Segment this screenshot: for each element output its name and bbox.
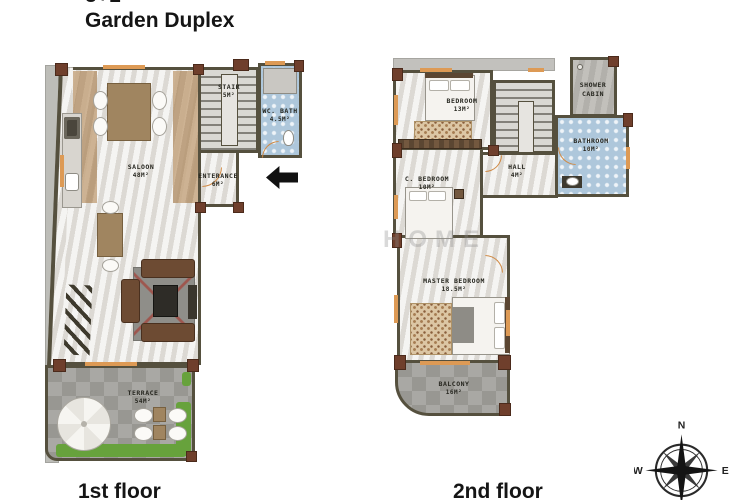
headboard [425,73,473,78]
coffee-table [153,285,178,317]
compass-label-east: E [722,466,729,477]
side-table [97,213,123,257]
caption-1st-floor: 1st floor [78,481,161,500]
floorplan-1st-floor: SALOON 48M² STAIR 5M² WC. BATH 4.5M² ENT… [45,55,303,465]
room-stair [198,67,259,153]
room-area: 18.5M² [423,286,485,294]
window-accent [420,68,452,72]
wall-pillar [394,355,406,370]
dining-chair [152,117,167,136]
pillow [450,80,470,91]
wall-pillar [233,202,244,213]
dining-table [107,83,151,141]
wall-pillar [193,64,204,75]
outdoor-chair [134,426,153,441]
wall-pillar [187,359,199,372]
window-accent [103,65,145,69]
room-name: BEDROOM [447,97,478,105]
outdoor-chair [168,408,187,423]
grass-tuft [182,372,191,386]
drain-icon [577,64,583,70]
wall-pillar [55,63,68,76]
floorplan-page: 3+1 Garden Duplex [0,0,750,500]
wall-pillar [499,403,511,416]
room-name: MASTER BEDROOM [423,277,485,285]
room-name: STAIR [218,83,240,91]
compass-center [679,468,685,474]
pillow [429,80,449,91]
tv-unit [188,285,197,319]
outdoor-chair [134,408,153,423]
wall-pillar [608,56,619,67]
room-area: 54M² [128,398,159,406]
window-accent [394,195,398,219]
window-accent [60,155,64,187]
window-accent [528,68,544,72]
room-label-balcony: BALCONY 16M² [439,380,470,397]
wardrobe [398,139,482,149]
shower-tray [263,68,297,94]
room-label-bathroom: BATHROOM 10M² [573,137,608,154]
room-area: 5M² [218,92,240,100]
room-area: 4M² [508,172,526,180]
wall-pillar [195,202,206,213]
dining-chair [152,91,167,110]
page-title-line2: Garden Duplex [85,9,234,32]
room-area: 6M² [198,181,238,189]
dining-chair [93,91,108,110]
room-name: SALOON [128,163,154,171]
sofa [141,323,195,342]
pillow [494,327,505,349]
page-title-line1: 3+1 [85,0,121,7]
watermark: HOME [383,228,487,252]
umbrella-pole [81,421,87,427]
stove-icon [64,117,80,139]
armchair [121,279,140,323]
louver-window [64,285,93,356]
room-label-enterance: ENTERANCE 6M² [198,172,238,189]
door-accent [420,361,470,365]
toilet-icon [283,130,294,146]
bed-throw [452,307,474,343]
wall-pillar [233,59,249,71]
sink-icon [65,173,79,191]
room-area: 16M² [439,389,470,397]
window-accent [394,295,398,323]
room-label-saloon: SALOON 48M² [128,163,154,180]
compass-label-west: W [634,466,643,477]
room-name: C. BEDROOM [405,175,449,183]
room-area: 48M² [128,172,154,180]
nightstand [454,189,464,199]
wall-pillar [623,113,633,127]
wall-pillar [392,68,403,81]
room-name: TERRACE [128,389,159,397]
window-accent [265,61,285,65]
stair-landing [518,101,534,153]
room-area: 10M² [405,184,449,192]
wall-pillar [294,60,304,72]
room-name: BALCONY [439,380,470,388]
room-name: ENTERANCE [198,172,238,180]
room-name: WC. BATH [262,107,297,115]
chair [102,259,119,272]
outdoor-table [153,407,166,422]
room-stair-2 [493,80,555,154]
room-area: 13M² [447,106,478,114]
outdoor-chair [168,426,187,441]
basin-icon [566,177,579,186]
room-label-bedroom: BEDROOM 13M² [447,97,478,114]
chair [102,201,119,214]
outdoor-table [153,425,166,440]
door-accent [85,362,137,366]
sofa [141,259,195,278]
compass-label-north: N [678,421,686,432]
room-label-wc-bath: WC. BATH 4.5M² [262,107,297,124]
window-accent [626,147,630,169]
wood-floor-band [173,71,199,203]
room-area: 4.5M² [262,116,297,124]
dining-chair [93,117,108,136]
compass-rose: N E W S [634,418,729,500]
room-label-hall: HALL 4M² [508,163,526,180]
window-accent [506,310,510,336]
room-name: HALL [508,163,526,171]
room-label-shower-cabin: SHOWER CABIN [573,81,613,99]
room-name: BATHROOM [573,137,608,145]
wall-pillar [498,355,511,370]
room-name: SHOWER CABIN [580,81,606,98]
room-label-c-bedroom: C. BEDROOM 10M² [405,175,449,192]
wall-pillar [53,359,66,372]
pillow [428,191,446,201]
room-label-terrace: TERRACE 54M² [128,389,159,406]
wall-pillar [186,451,197,462]
wall-pillar [392,143,402,158]
pillow [494,302,505,324]
room-terrace [45,365,195,461]
master-rug [410,303,452,355]
window-accent [394,95,398,125]
room-label-master-bedroom: MASTER BEDROOM 18.5M² [423,277,485,294]
caption-2nd-floor: 2nd floor [453,481,543,500]
pillow [409,191,427,201]
room-label-stair: STAIR 5M² [218,83,240,100]
room-area: 10M² [573,146,608,154]
